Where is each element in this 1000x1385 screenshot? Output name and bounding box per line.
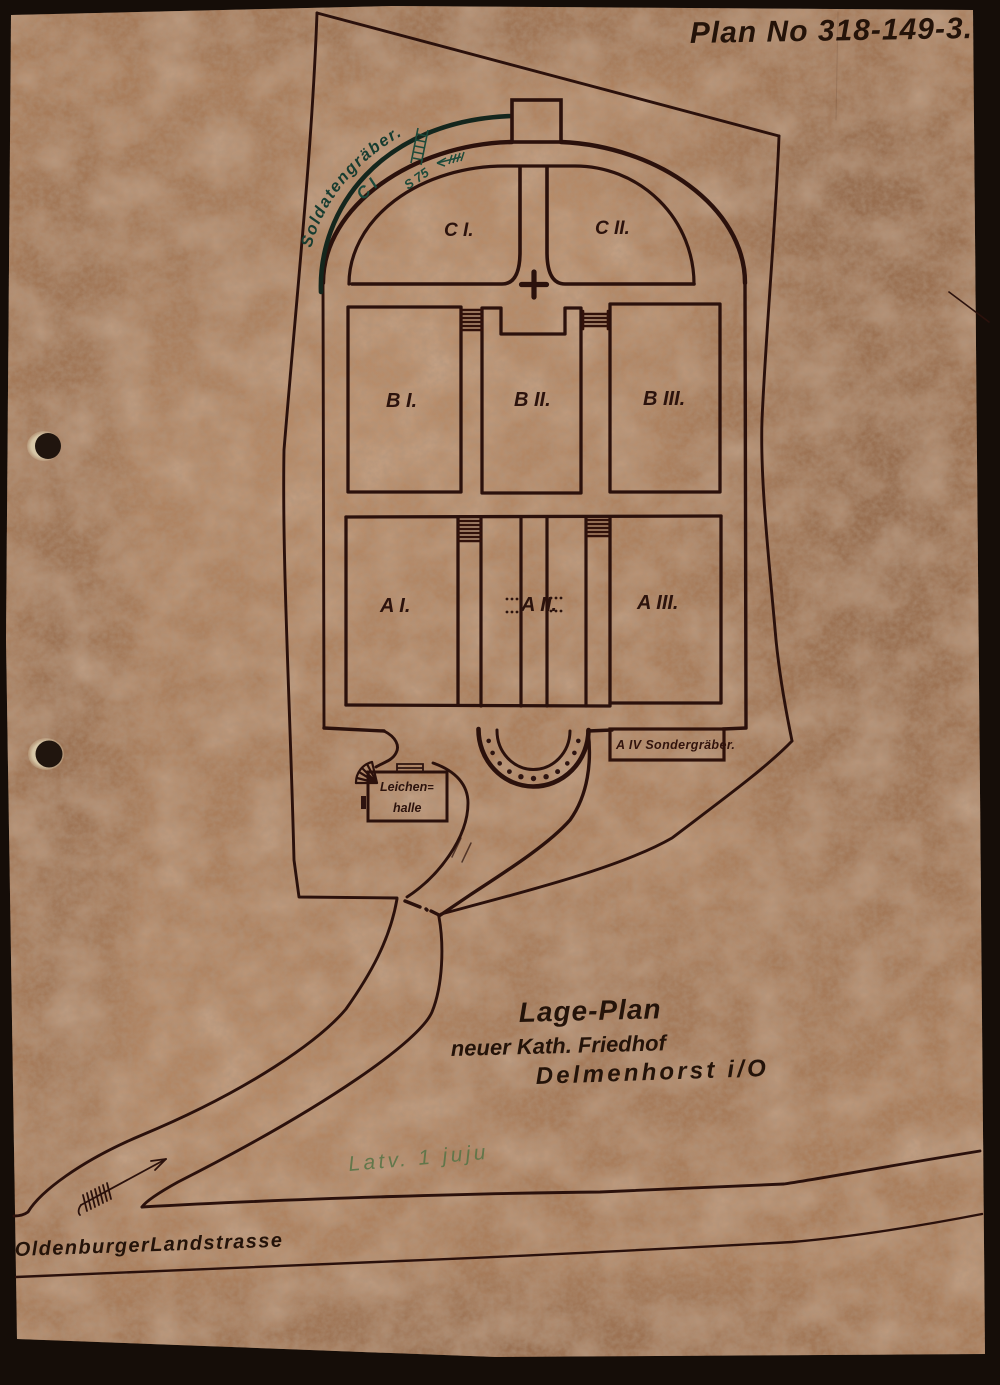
- svg-text:B II.: B II.: [514, 389, 551, 411]
- svg-text:C II.: C II.: [595, 218, 630, 239]
- svg-text:A IV Sondergräber.: A IV Sondergräber.: [615, 738, 735, 752]
- svg-text:A II.: A II.: [520, 594, 557, 616]
- svg-text:B III.: B III.: [643, 388, 685, 410]
- svg-text:C I.: C I.: [444, 220, 474, 241]
- svg-text:A I.: A I.: [379, 595, 410, 617]
- svg-text:Plan No 318-149-3.: Plan No 318-149-3.: [690, 12, 974, 50]
- svg-text:Lage-Plan: Lage-Plan: [518, 993, 662, 1028]
- svg-text:halle: halle: [393, 801, 422, 815]
- svg-text:B I.: B I.: [386, 390, 417, 412]
- svg-text:Leichen=: Leichen=: [380, 780, 434, 794]
- svg-text:A III.: A III.: [636, 592, 678, 614]
